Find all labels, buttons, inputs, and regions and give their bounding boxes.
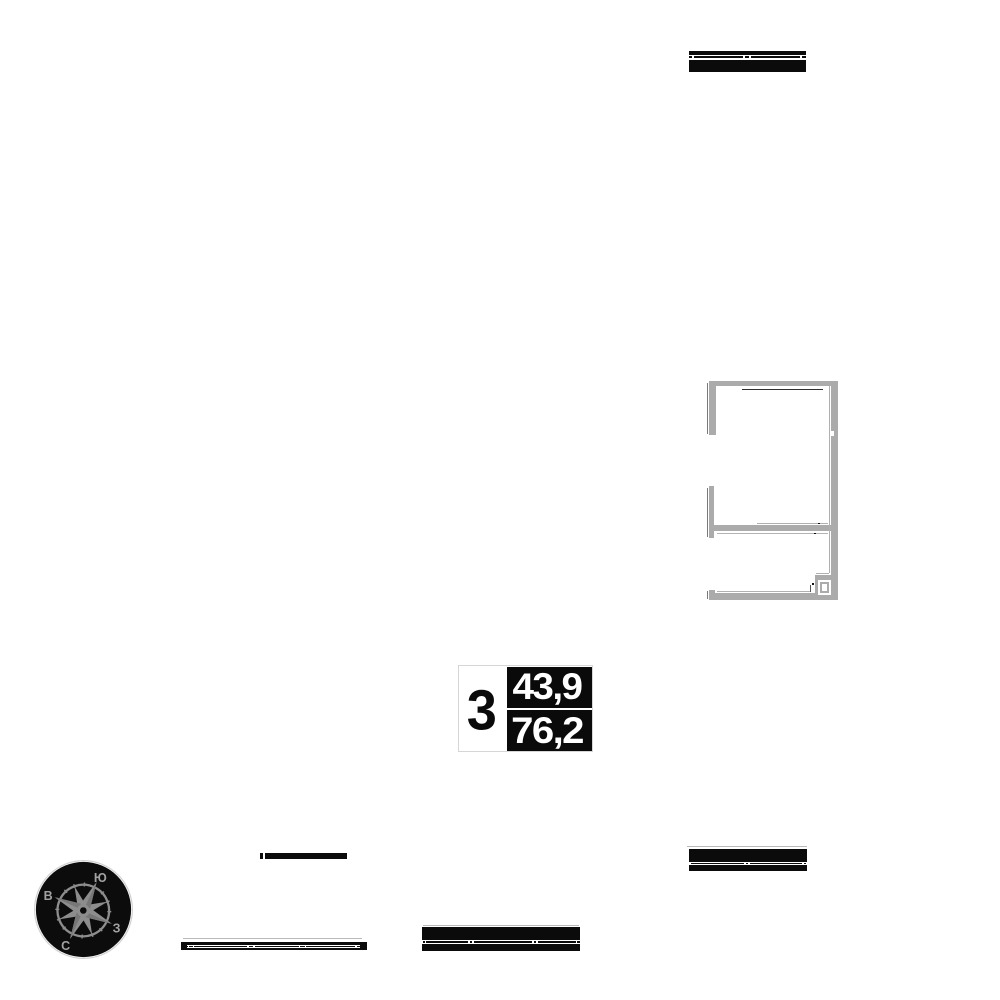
svg-text:С: С [61, 939, 70, 953]
svg-text:Ю: Ю [94, 871, 107, 885]
svg-text:З: З [113, 921, 121, 935]
svg-text:В: В [44, 889, 53, 903]
